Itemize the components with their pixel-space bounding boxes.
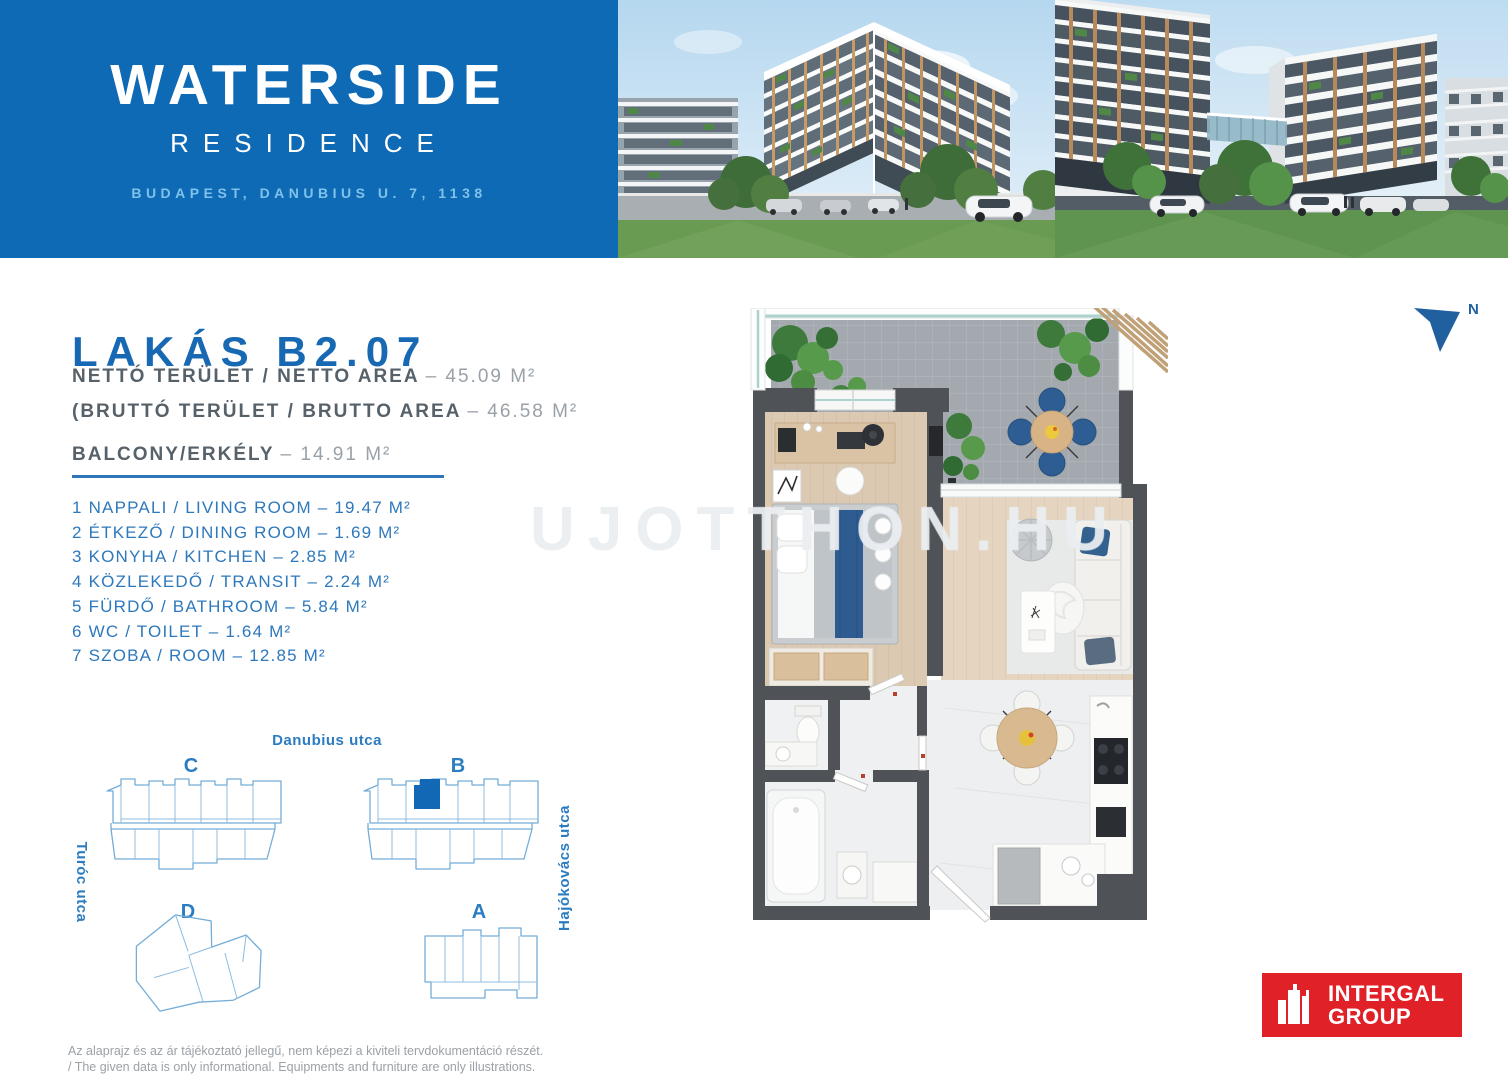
building-d-label: D: [181, 901, 195, 923]
bedroom-windows: [815, 390, 895, 410]
building-c-outline: [107, 779, 281, 869]
room-item: 1 NAPPALI / LIVING ROOM – 19.47 M²: [72, 496, 411, 521]
highlighted-unit-b207: [414, 779, 440, 809]
building-b-label: B: [451, 755, 465, 777]
brochure-page: WATERSIDE RESIDENCE BUDAPEST, DANUBIUS U…: [0, 0, 1508, 1080]
right-building: [1285, 34, 1437, 204]
disclaimer-hu: Az alaprajz és az ár tájékoztató jellegű…: [68, 1043, 543, 1059]
room-item: 2 ÉTKEZŐ / DINING ROOM – 1.69 M²: [72, 521, 411, 546]
disclaimer: Az alaprajz és az ár tájékoztató jellegű…: [68, 1043, 543, 1075]
render-1-graphic: [618, 0, 1055, 258]
room-item: 4 KÖZLEKEDŐ / TRANSIT – 2.24 M²: [72, 570, 411, 595]
bedroom-chair: [836, 467, 864, 495]
room-item: 7 SZOBA / ROOM – 12.85 M²: [72, 644, 411, 669]
person: [905, 198, 908, 210]
building-d-outline: [126, 901, 268, 1016]
toilet: [795, 706, 821, 747]
art-frame: [773, 470, 801, 502]
building-a-outline: [425, 928, 537, 998]
street-turoc: Turóc utca: [73, 842, 90, 923]
street-hajokovacs: Hajókovács utca: [556, 805, 573, 931]
bedroom-desk: [775, 423, 895, 463]
balcony-area-line: BALCONY/ERKÉLY– 14.91 M²: [72, 444, 592, 466]
room-item: 3 KONYHA / KITCHEN – 2.85 M²: [72, 545, 411, 570]
building-render-photo-2: [1055, 0, 1508, 258]
bath-cabinet: [873, 862, 917, 902]
brand-header: WATERSIDE RESIDENCE BUDAPEST, DANUBIUS U…: [0, 0, 618, 258]
site-plan: Danubius utca Turóc utca Hajókovács utca…: [60, 726, 590, 1022]
section-divider: [72, 475, 444, 478]
intergal-group-logo: INTERGAL GROUP: [1262, 973, 1462, 1037]
netto-area-line: NETTÓ TERÜLET / NETTO AREA– 45.09 M²: [72, 366, 592, 388]
pouf: [1010, 519, 1052, 561]
bathtub: [767, 790, 825, 902]
project-title: WATERSIDE: [110, 57, 508, 114]
brutto-area-line: (BRUTTÓ TERÜLET / BRUTTO AREA– 46.58 M²: [72, 401, 592, 423]
logo-text: INTERGAL GROUP: [1328, 982, 1444, 1028]
project-address: BUDAPEST, DANUBIUS U. 7, 1138: [131, 185, 486, 201]
room-list: 1 NAPPALI / LIVING ROOM – 19.47 M² 2 ÉTK…: [72, 496, 411, 669]
room-item: 5 FÜRDŐ / BATHROOM – 5.84 M²: [72, 595, 411, 620]
coffee-table: [1021, 591, 1055, 653]
room-item: 6 WC / TOILET – 1.64 M²: [72, 620, 411, 645]
building-c-label: C: [184, 755, 198, 777]
wc-basin: [765, 742, 817, 766]
north-arrow: N: [1408, 298, 1488, 360]
north-label: N: [1468, 301, 1479, 318]
render-2-graphic: [1055, 0, 1508, 258]
building-a-label: A: [472, 901, 486, 923]
building-b-outline: [364, 779, 538, 869]
street-danubius: Danubius utca: [272, 732, 382, 749]
bed: [772, 504, 898, 644]
floor-plan: [745, 308, 1168, 935]
washing-machine: [837, 852, 867, 898]
dresser: [769, 648, 873, 686]
north-arrow-icon: [1414, 308, 1460, 352]
kitchen-island: [993, 844, 1105, 906]
disclaimer-en: / The given data is only informational. …: [68, 1059, 543, 1075]
area-summary: NETTÓ TERÜLET / NETTO AREA– 45.09 M² (BR…: [72, 366, 592, 479]
buildings-icon: [1276, 984, 1316, 1026]
project-subtitle: RESIDENCE: [170, 128, 448, 159]
building-render-photo-1: [618, 0, 1055, 258]
